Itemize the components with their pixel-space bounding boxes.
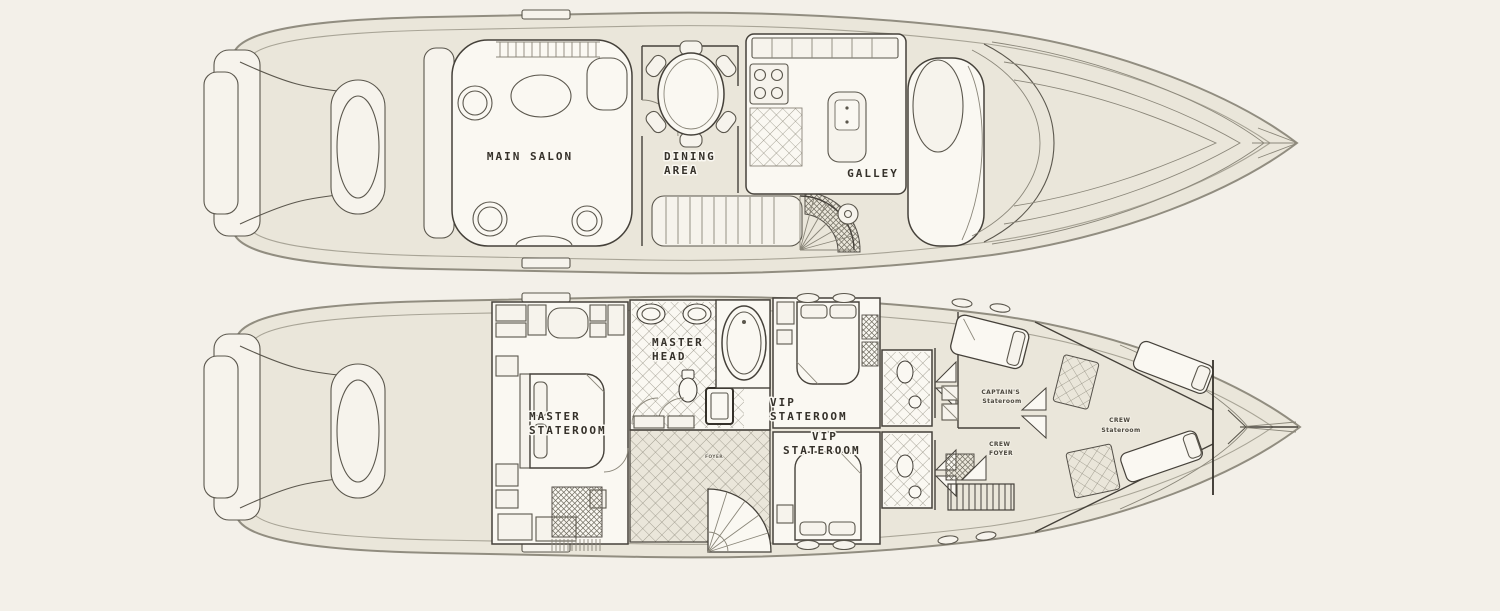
- galley-room: GALLEY: [746, 34, 906, 194]
- deck-hatch: [797, 294, 819, 303]
- toilet: [897, 455, 913, 477]
- vip-bed: [797, 302, 859, 384]
- label-main-salon: MAIN SALON: [487, 150, 573, 163]
- vip-bed: [795, 452, 861, 540]
- crew-stairs: [948, 484, 1014, 510]
- locker: [862, 315, 878, 339]
- locker: [862, 342, 878, 366]
- master-stateroom-room: MASTER STATEROOM: [492, 302, 628, 551]
- vip-stateroom-fwd-room: VIP STATEROOM: [770, 294, 880, 429]
- dining-table: [658, 53, 724, 135]
- helm-seating: [908, 58, 984, 246]
- boarding-gate: [522, 258, 570, 268]
- sink: [683, 304, 711, 324]
- boarding-gate: [522, 293, 570, 302]
- stair-post: [838, 204, 858, 224]
- nightstand: [496, 356, 518, 376]
- stern-sunpad: [331, 80, 385, 214]
- deck-hatch: [797, 541, 819, 550]
- stern-sunpad-lower: [331, 364, 385, 498]
- lower-deck-plan: MASTER STATEROOM: [204, 293, 1300, 557]
- deck-hatch: [833, 294, 855, 303]
- guest-head: [882, 350, 932, 426]
- label-foyer: FOYER: [705, 454, 723, 460]
- crew-head-tile: [1066, 444, 1121, 499]
- shower-stall: [706, 388, 733, 424]
- galley-floor-tile: [750, 108, 802, 166]
- vip-stateroom-mid-room: VIP STATEROOM: [773, 430, 880, 550]
- deck-hatch: [990, 303, 1011, 314]
- nightstand: [777, 302, 794, 324]
- aft-cockpit: [424, 48, 454, 238]
- label-galley: GALLEY: [847, 167, 899, 180]
- main-deck-plan: MAIN SALON DINING AREA: [204, 10, 1297, 273]
- sink: [909, 486, 921, 498]
- toilet: [679, 370, 697, 402]
- galley-island: [828, 92, 866, 162]
- sink: [637, 304, 665, 324]
- floorplan-canvas: MAIN SALON DINING AREA: [0, 0, 1500, 611]
- bathtub: [716, 300, 770, 388]
- main-salon-room: MAIN SALON: [452, 40, 632, 246]
- settee: [548, 308, 588, 338]
- deck-hatch: [952, 298, 973, 308]
- master-head-room: MASTER HEAD: [630, 300, 770, 430]
- boarding-gate: [522, 10, 570, 19]
- nightstand: [777, 505, 793, 523]
- sink: [909, 396, 921, 408]
- toilet: [897, 361, 913, 383]
- guest-head: [882, 432, 932, 508]
- galley-stove: [750, 64, 788, 104]
- yacht-floorplan: MAIN SALON DINING AREA: [0, 0, 1500, 611]
- nightstand: [496, 464, 518, 486]
- deck-hatch: [833, 541, 855, 550]
- galley-counter: [752, 38, 898, 58]
